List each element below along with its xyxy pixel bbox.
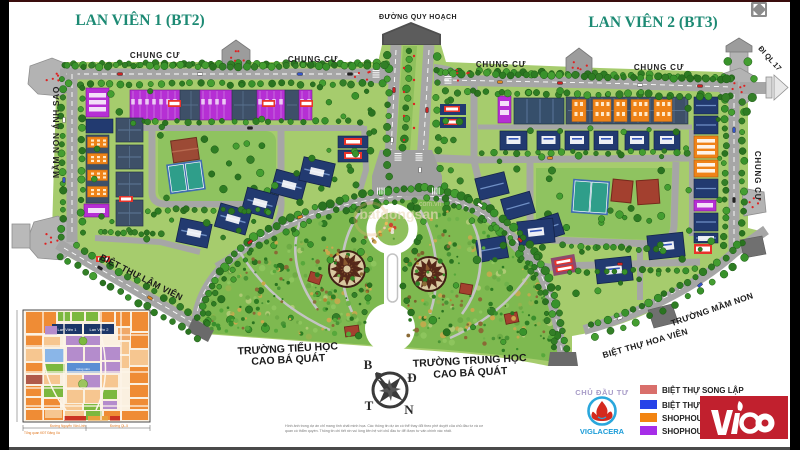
svg-text:Đường Nguyễn Văn Linh: Đường Nguyễn Văn Linh	[50, 423, 86, 428]
svg-text:T: T	[365, 398, 374, 413]
svg-text:Đ: Đ	[407, 370, 416, 385]
svg-text:Lan Viên 2: Lan Viên 2	[89, 327, 109, 332]
svg-text:VIGLACERA: VIGLACERA	[580, 427, 625, 436]
svg-text:Đường QL-5: Đường QL-5	[110, 424, 128, 428]
svg-text:Lan Viên 1: Lan Viên 1	[57, 327, 77, 332]
svg-text:batdongsan: batdongsan	[359, 206, 438, 222]
svg-text:MẦM NON ÁNH SAO: MẦM NON ÁNH SAO	[51, 86, 61, 178]
svg-text:com.vn: com.vn	[419, 201, 442, 208]
svg-text:Tổng quan KĐT Đặng Xá: Tổng quan KĐT Đặng Xá	[24, 431, 60, 435]
svg-text:CHUNG CƯ: CHUNG CƯ	[634, 63, 684, 72]
svg-text:BIỆT THỰ SONG LẬP: BIỆT THỰ SONG LẬP	[662, 386, 744, 395]
svg-text:quan có thẩm quyền. Thông tin: quan có thẩm quyền. Thông tin chi tiết x…	[285, 429, 452, 433]
svg-text:CHUNG CƯ: CHUNG CƯ	[130, 51, 180, 60]
svg-text:CHUNG CƯ: CHUNG CƯ	[476, 60, 526, 69]
svg-text:LAN VIÊN 1 (BT2): LAN VIÊN 1 (BT2)	[75, 12, 204, 29]
svg-text:CHỦ ĐẦU TƯ: CHỦ ĐẦU TƯ	[575, 387, 629, 397]
svg-text:CHUNG CƯ: CHUNG CƯ	[288, 55, 338, 64]
svg-text:Công viên: Công viên	[76, 367, 90, 371]
svg-text:ĐƯỜNG QUY HOẠCH: ĐƯỜNG QUY HOẠCH	[379, 12, 457, 21]
svg-text:CHUNG CƯ: CHUNG CƯ	[753, 151, 762, 201]
svg-text:Hình ảnh trong dự án chỉ mang: Hình ảnh trong dự án chỉ mang tính chất …	[285, 424, 484, 428]
svg-text:N: N	[404, 402, 414, 417]
svg-text:B: B	[364, 357, 373, 372]
svg-text:LAN VIÊN 2 (BT3): LAN VIÊN 2 (BT3)	[588, 14, 717, 31]
